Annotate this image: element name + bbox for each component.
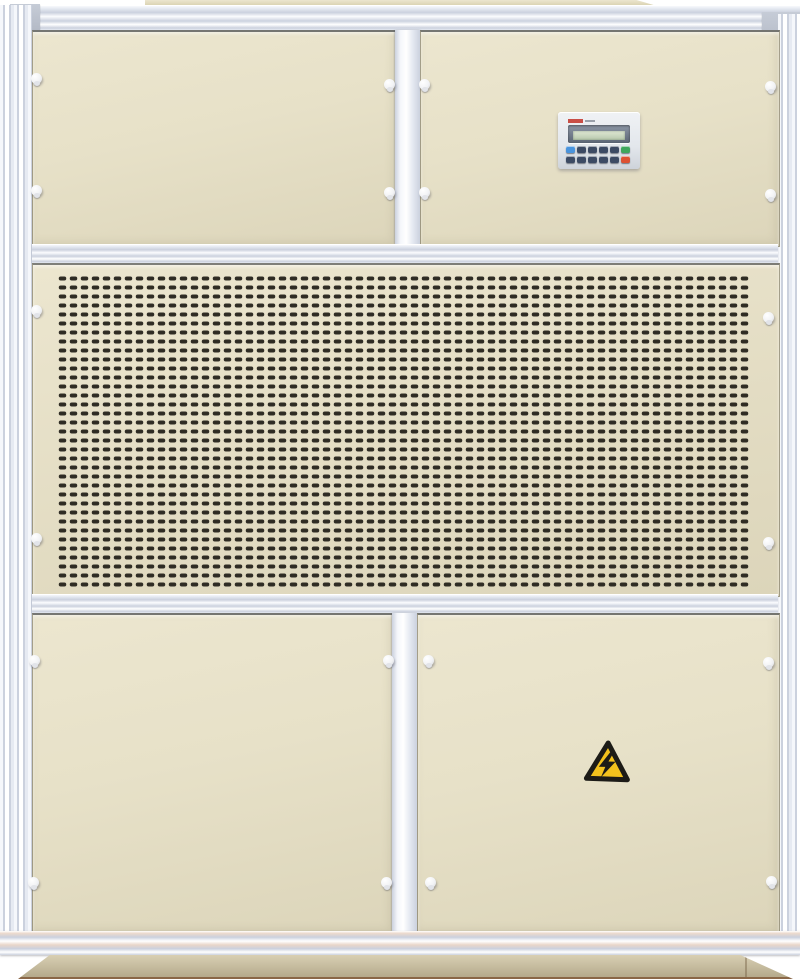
latch-knob — [29, 655, 40, 666]
latch-knob — [384, 187, 395, 198]
latch-knob — [423, 655, 434, 666]
latch-knob — [765, 189, 776, 200]
latch-knob — [31, 305, 42, 316]
hvac-cabinet — [0, 0, 800, 980]
latch-knob — [31, 185, 42, 196]
latch-knob — [763, 537, 774, 548]
latch-layer — [0, 0, 800, 980]
latch-knob — [766, 876, 777, 887]
latch-knob — [383, 655, 394, 666]
latch-knob — [28, 877, 39, 888]
latch-knob — [31, 73, 42, 84]
latch-knob — [765, 81, 776, 92]
latch-knob — [763, 657, 774, 668]
latch-knob — [381, 877, 392, 888]
latch-knob — [763, 312, 774, 323]
latch-knob — [31, 533, 42, 544]
latch-knob — [425, 877, 436, 888]
latch-knob — [419, 187, 430, 198]
latch-knob — [384, 79, 395, 90]
latch-knob — [419, 79, 430, 90]
